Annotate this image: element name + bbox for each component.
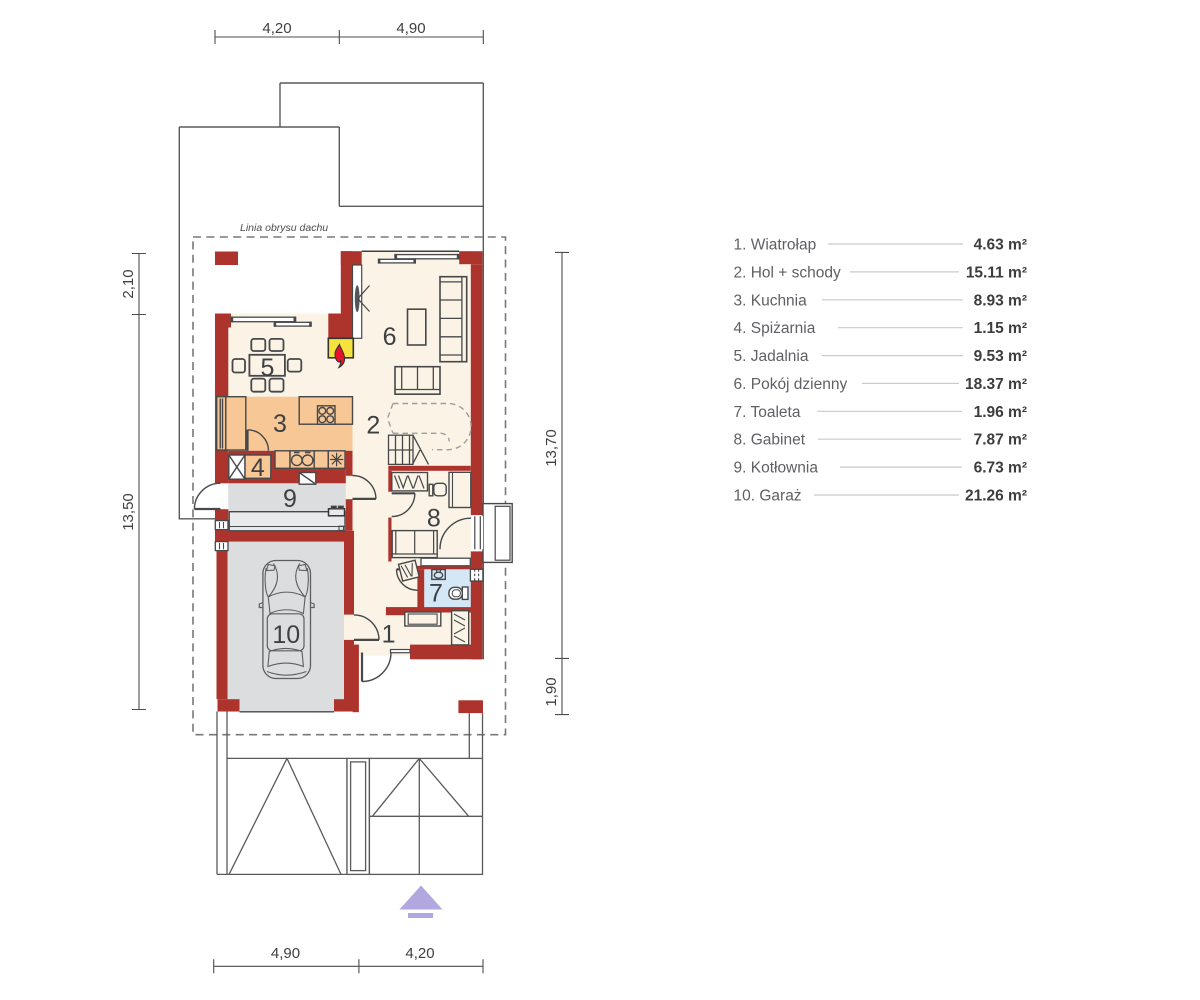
svg-text:2: 2: [366, 412, 380, 440]
svg-text:9: 9: [283, 485, 297, 513]
svg-text:7. Toaleta: 7. Toaleta: [734, 404, 801, 421]
svg-text:5. Jadalnia: 5. Jadalnia: [734, 348, 809, 365]
svg-text:7.87 m²: 7.87 m²: [974, 432, 1027, 449]
svg-text:5: 5: [261, 354, 275, 382]
svg-text:13,70: 13,70: [543, 429, 560, 467]
svg-text:9.53 m²: 9.53 m²: [974, 348, 1027, 365]
svg-text:7: 7: [429, 580, 443, 608]
svg-text:1,90: 1,90: [543, 677, 560, 706]
svg-text:4,90: 4,90: [396, 20, 425, 37]
svg-text:9. Kotłownia: 9. Kotłownia: [734, 460, 819, 477]
svg-text:4. Spiżarnia: 4. Spiżarnia: [734, 320, 816, 337]
svg-text:6. Pokój dzienny: 6. Pokój dzienny: [734, 376, 848, 393]
svg-text:18.37 m²: 18.37 m²: [965, 376, 1027, 393]
svg-text:8: 8: [427, 505, 441, 533]
svg-text:3. Kuchnia: 3. Kuchnia: [734, 292, 808, 309]
svg-text:10. Garaż: 10. Garaż: [734, 488, 802, 505]
svg-text:4: 4: [251, 454, 265, 482]
svg-text:2,10: 2,10: [120, 269, 137, 298]
svg-text:21.26 m²: 21.26 m²: [965, 488, 1027, 505]
svg-text:Linia obrysu dachu: Linia obrysu dachu: [240, 222, 328, 234]
svg-text:8. Gabinet: 8. Gabinet: [734, 432, 806, 449]
svg-text:2. Hol + schody: 2. Hol + schody: [734, 264, 842, 281]
svg-text:3: 3: [273, 410, 287, 438]
svg-text:4,20: 4,20: [262, 20, 291, 37]
svg-text:4,90: 4,90: [271, 945, 300, 962]
svg-text:4.63 m²: 4.63 m²: [974, 237, 1027, 254]
svg-text:4,20: 4,20: [405, 945, 434, 962]
svg-text:10: 10: [272, 621, 300, 649]
svg-text:1.96 m²: 1.96 m²: [974, 404, 1027, 421]
svg-text:6.73 m²: 6.73 m²: [974, 460, 1027, 477]
svg-text:13,50: 13,50: [120, 493, 137, 531]
svg-text:6: 6: [383, 323, 397, 351]
svg-text:1: 1: [382, 621, 396, 649]
svg-text:8.93 m²: 8.93 m²: [974, 292, 1027, 309]
svg-text:1. Wiatrołap: 1. Wiatrołap: [734, 237, 817, 254]
svg-text:15.11 m²: 15.11 m²: [966, 264, 1027, 281]
svg-text:1.15 m²: 1.15 m²: [974, 320, 1027, 337]
